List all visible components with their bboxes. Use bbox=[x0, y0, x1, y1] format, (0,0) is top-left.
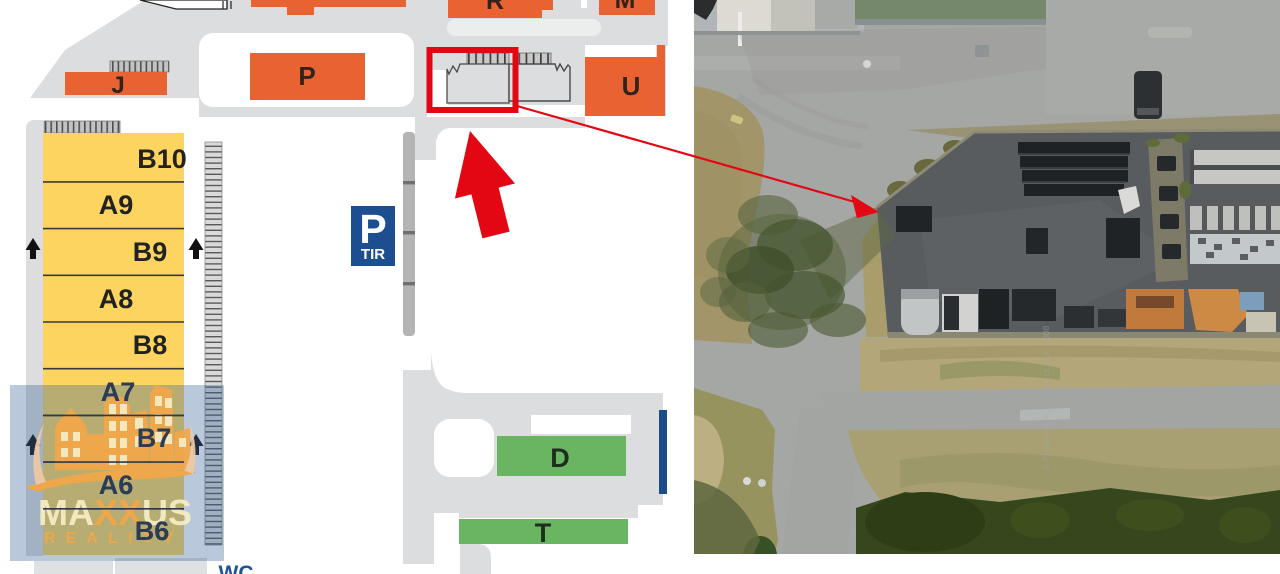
svg-text:B7: B7 bbox=[137, 423, 172, 453]
svg-text:B8: B8 bbox=[133, 330, 168, 360]
svg-text:J: J bbox=[111, 72, 124, 99]
svg-text:B9: B9 bbox=[133, 237, 168, 267]
svg-text:B6: B6 bbox=[135, 516, 170, 546]
svg-text:D: D bbox=[550, 443, 570, 473]
svg-text:A9: A9 bbox=[99, 190, 134, 220]
svg-text:M: M bbox=[615, 0, 636, 14]
svg-text:TIR: TIR bbox=[361, 246, 385, 263]
svg-text:© Přispěvatelé: Seznam.cz, a.s: © Přispěvatelé: Seznam.cz, a.s., 2008 bbox=[1041, 326, 1051, 470]
svg-text:T: T bbox=[535, 518, 552, 548]
svg-text:R: R bbox=[486, 0, 504, 15]
svg-text:WC: WC bbox=[219, 562, 254, 574]
svg-text:P: P bbox=[298, 61, 315, 91]
svg-text:A8: A8 bbox=[99, 284, 134, 314]
svg-text:B10: B10 bbox=[137, 144, 187, 174]
svg-text:U: U bbox=[622, 71, 641, 101]
svg-text:A6: A6 bbox=[99, 470, 134, 500]
svg-text:A7: A7 bbox=[101, 377, 136, 407]
